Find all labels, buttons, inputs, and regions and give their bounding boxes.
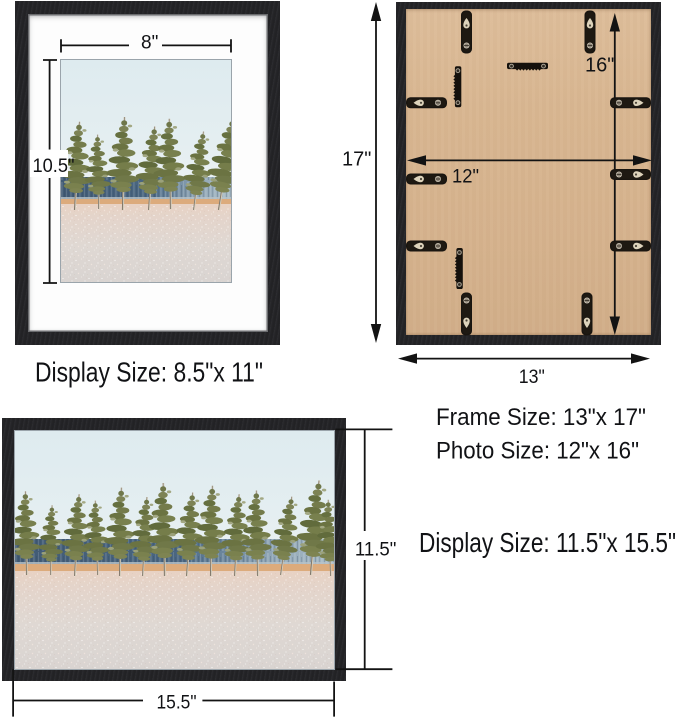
svg-text:15.5": 15.5"	[157, 693, 197, 714]
svg-text:17": 17"	[342, 149, 371, 171]
svg-text:Frame Size: 13"x 17": Frame Size: 13"x 17"	[436, 404, 646, 431]
svg-text:Display Size: 8.5"x 11": Display Size: 8.5"x 11"	[35, 357, 263, 388]
svg-text:8": 8"	[141, 33, 158, 54]
svg-text:10.5": 10.5"	[33, 156, 75, 177]
svg-text:13": 13"	[519, 367, 545, 388]
svg-text:Photo Size: 12"x 16": Photo Size: 12"x 16"	[436, 437, 639, 464]
svg-text:11.5": 11.5"	[355, 540, 397, 561]
svg-text:Display Size: 11.5"x 15.5": Display Size: 11.5"x 15.5"	[419, 527, 676, 558]
